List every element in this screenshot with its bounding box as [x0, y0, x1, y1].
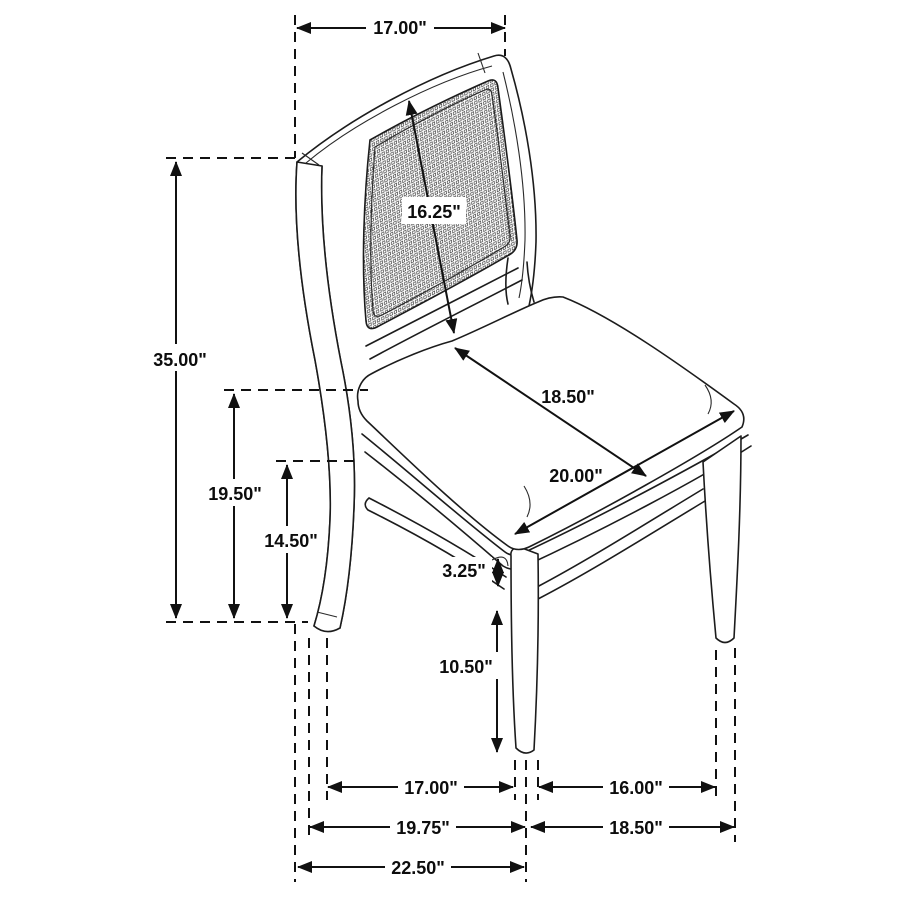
- dimension-base-depth-inner: 17.00": [328, 774, 513, 799]
- dim-label-floor-to-apron: 14.50": [264, 531, 318, 551]
- chair-dimension-diagram: 17.00" 16.25" 35.00" 19.50": [0, 0, 900, 900]
- dim-label-base-width-outer: 18.50": [609, 818, 663, 838]
- dimension-base-depth-mid: 19.75": [310, 814, 525, 839]
- dim-label-back-diagonal: 16.25": [407, 202, 461, 222]
- dimension-leg-height: 10.50": [434, 611, 498, 752]
- apron-leg-fillet: [492, 557, 508, 566]
- diagram-stage: 17.00" 16.25" 35.00" 19.50": [0, 0, 900, 900]
- dim-label-seat-width: 20.00": [549, 466, 603, 486]
- dim-label-base-depth-inner: 17.00": [404, 778, 458, 798]
- rear-left-leg: [296, 162, 355, 632]
- dim-label-base-depth-outer: 22.50": [391, 858, 445, 878]
- dimension-base-width-outer: 18.50": [531, 814, 734, 839]
- chair-drawing: [296, 53, 751, 753]
- front-right-leg: [703, 436, 741, 643]
- dimension-apron-thickness: 3.25": [437, 557, 498, 586]
- dim-label-apron-thickness: 3.25": [442, 561, 486, 581]
- dim-label-seat-height: 19.50": [208, 484, 262, 504]
- dim-label-overall-height: 35.00": [153, 350, 207, 370]
- dim-label-base-depth-mid: 19.75": [396, 818, 450, 838]
- dim-label-back-width: 17.00": [373, 18, 427, 38]
- dim-label-leg-height: 10.50": [439, 657, 493, 677]
- dim-label-base-width-inner: 16.00": [609, 778, 663, 798]
- dimension-base-depth-outer: 22.50": [298, 854, 524, 879]
- front-left-leg: [511, 547, 538, 753]
- dim-label-seat-depth: 18.50": [541, 387, 595, 407]
- dimension-base-width-inner: 16.00": [539, 774, 715, 799]
